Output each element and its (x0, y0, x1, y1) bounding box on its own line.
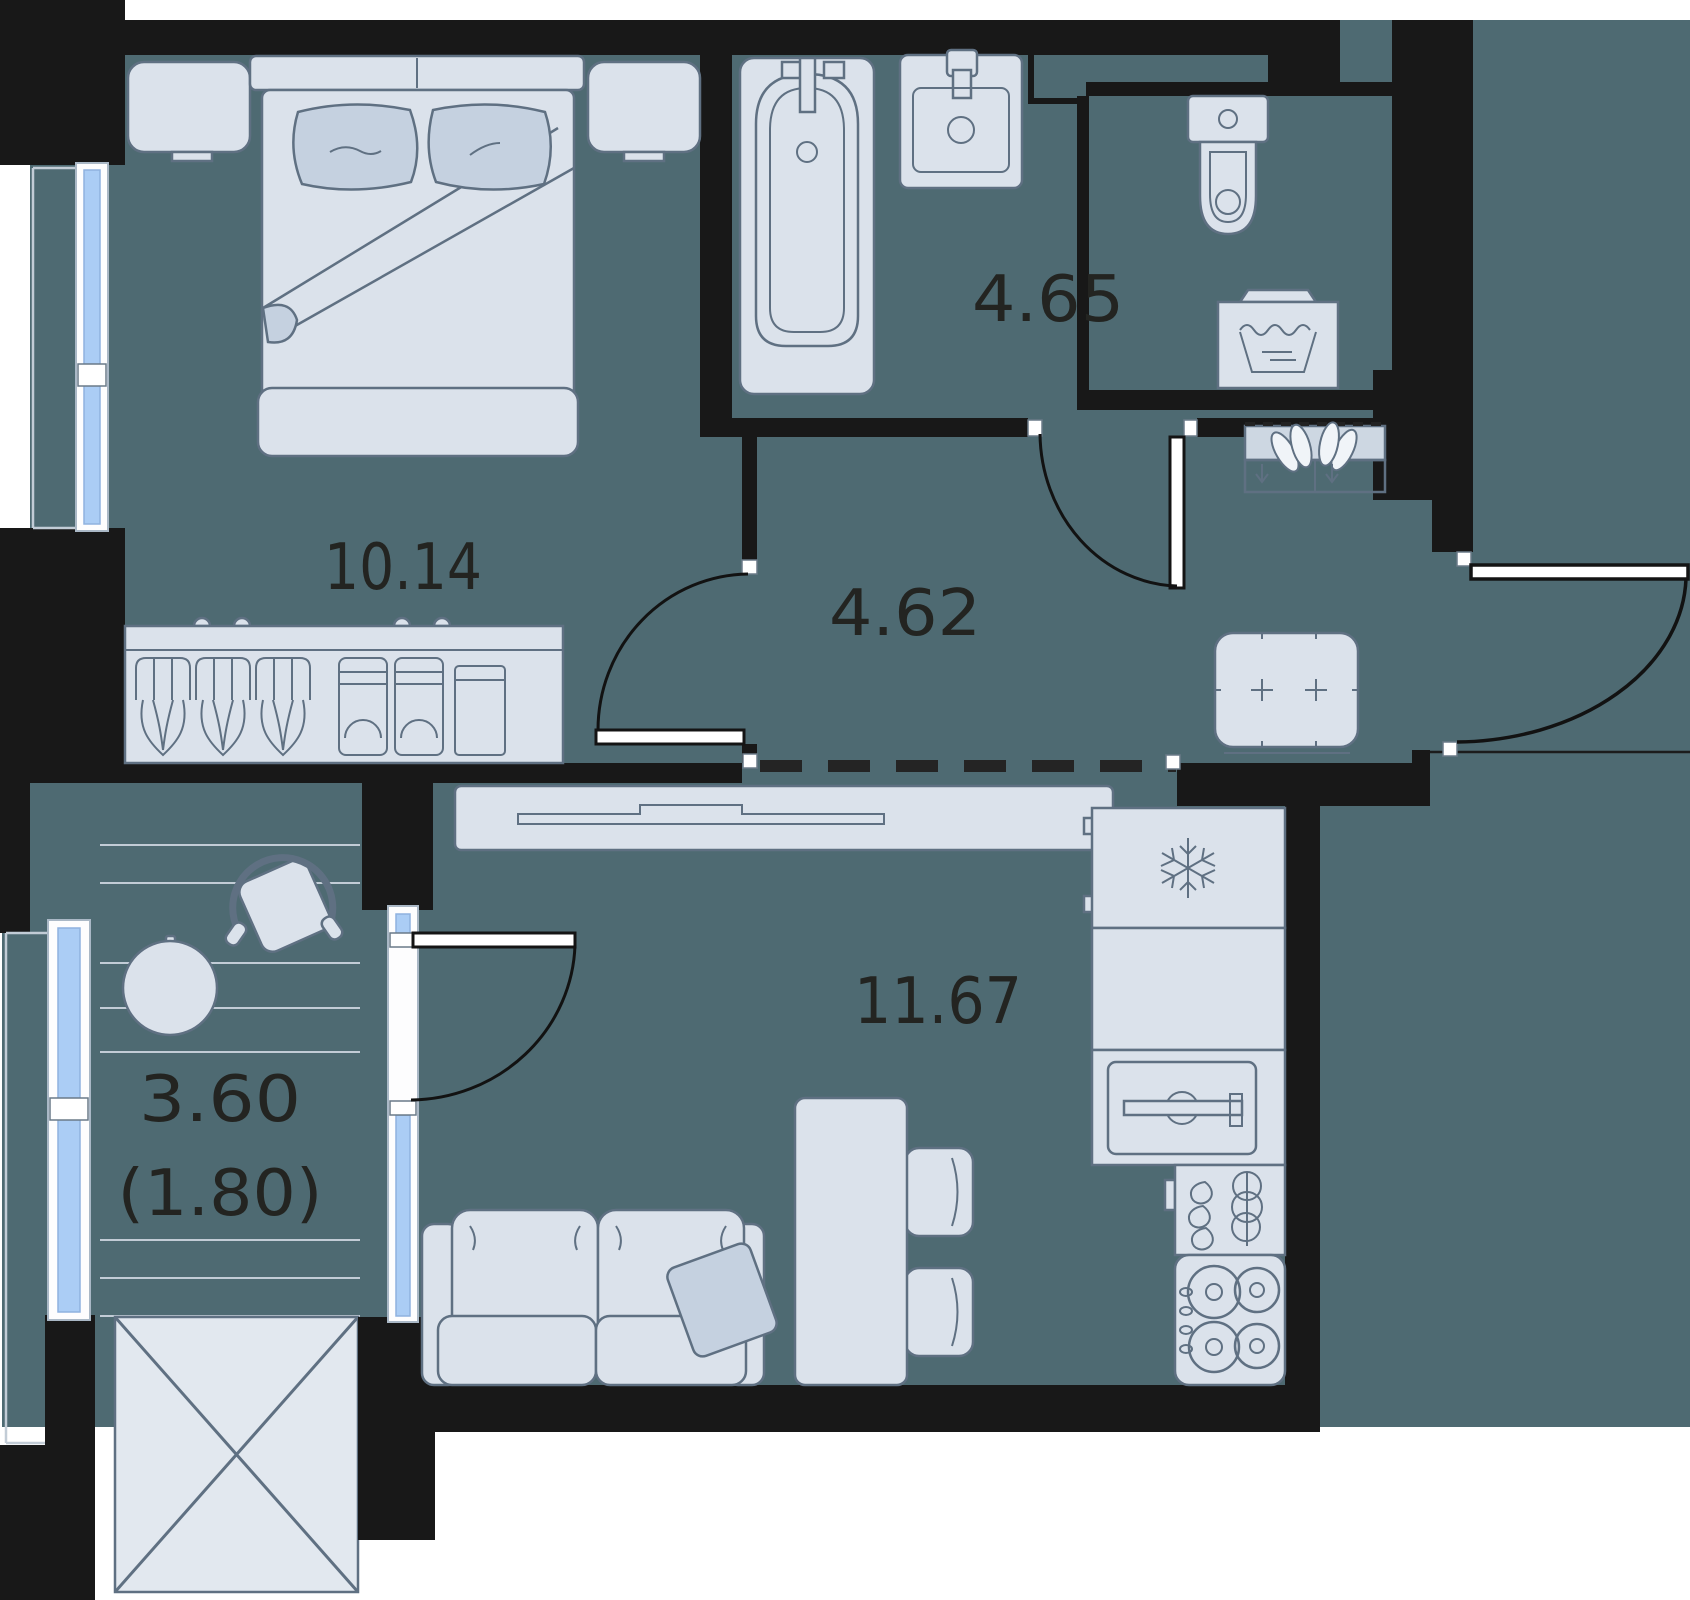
bathtub (740, 58, 874, 394)
nightstand-left-pull (172, 152, 212, 161)
bedroom-area-label: 10.14 (324, 531, 482, 605)
toilet-tank (1188, 96, 1268, 142)
wall-hall-south-band (1177, 763, 1430, 806)
wall-closet-west (1077, 96, 1089, 390)
wall-south (410, 1385, 1320, 1432)
wall-bath-niche-v (1028, 55, 1034, 104)
wall-bedroom-bathroom (700, 55, 732, 437)
balcony-area-label: 3.60 (139, 1063, 301, 1137)
kitchen-sink-section (1165, 1165, 1285, 1255)
balcony-area-label-secondary: (1.80) (118, 1157, 323, 1231)
tap-icon (824, 62, 844, 78)
fridge (1084, 808, 1285, 928)
washer-flap (1240, 290, 1316, 302)
wall-band-south-bedroom (0, 763, 742, 783)
wall-closet-south (1077, 390, 1392, 410)
window-glass (84, 170, 100, 524)
oven (1092, 1050, 1285, 1165)
toilet-bowl (1200, 142, 1256, 234)
nightstand-right-pull (624, 152, 664, 161)
faucet-icon (800, 58, 815, 112)
door-leaf (1170, 437, 1184, 588)
balcony-window-right (388, 906, 418, 1322)
dining-chair (905, 1268, 973, 1356)
kitchen-living-area-label: 11.67 (854, 965, 1022, 1039)
door-leaf (413, 933, 575, 947)
wall-top (125, 20, 1340, 55)
washing-machine (1218, 290, 1338, 388)
wall-top-left-block (0, 0, 125, 165)
sofa (422, 1210, 779, 1385)
wall-bedroom-hall-upper (742, 437, 757, 560)
oven-handle (1124, 1101, 1242, 1115)
faucet-icon (953, 70, 971, 98)
dining-chair (905, 1148, 973, 1236)
stove (1175, 1255, 1285, 1385)
wall-balcony-door-north (362, 783, 433, 910)
ottoman (1215, 633, 1358, 753)
bathroom-area-label: 4.65 (972, 263, 1124, 337)
pillow (429, 104, 551, 189)
window-glass (396, 1115, 410, 1316)
wall-right-above-door (1432, 500, 1473, 552)
nightstand-right (588, 62, 700, 152)
floor-plan-svg: 3.60 (1.80) (0, 0, 1690, 1600)
dining-table (795, 1098, 907, 1385)
wall-bathroom-south-left (700, 418, 1028, 437)
tv-stand (455, 786, 1113, 850)
kitchen-counter (1092, 928, 1285, 1050)
pillow (293, 104, 417, 189)
sofa-seat-cushion (438, 1316, 596, 1385)
wall-kitchen-right (1285, 806, 1320, 1385)
floor-plan-stage: 3.60 (1.80) (0, 0, 1690, 1600)
door-leaf (596, 730, 744, 744)
wall-bottom-left-block (0, 1445, 95, 1600)
wall-right-upper (1392, 20, 1473, 370)
wall-left-mid (0, 528, 125, 765)
bathroom-sink (900, 50, 1022, 188)
wall-balcony-left-top (0, 783, 30, 933)
hallway-area-label: 4.62 (829, 577, 981, 651)
nightstand-left (128, 62, 250, 152)
bed-foot-bench (258, 388, 578, 456)
wall-closet-north (1086, 82, 1392, 96)
wall-hall-south-step (1412, 750, 1430, 763)
wardrobe (125, 618, 563, 763)
wall-bath-niche-h (1028, 98, 1080, 104)
bed (250, 56, 584, 456)
wall-balcony-left-bottom (45, 1315, 95, 1445)
round-table-top (123, 941, 217, 1035)
door-leaf (1471, 565, 1688, 579)
balcony-storage-box (115, 1317, 358, 1592)
